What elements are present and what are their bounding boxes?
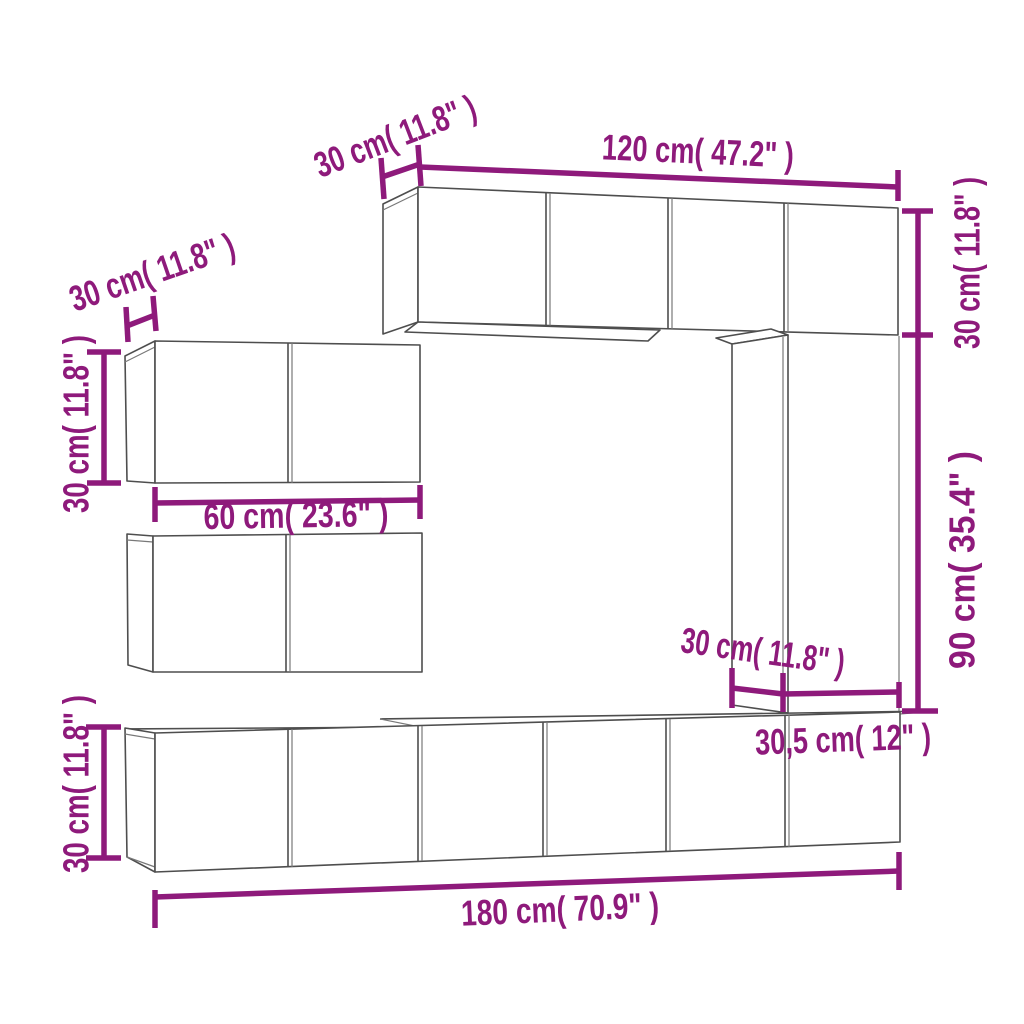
bottom-row-side-face — [125, 728, 155, 872]
dim-left-upper-depth — [126, 296, 156, 342]
dim-top-width-line — [420, 167, 898, 187]
dim-right-lower-height — [902, 335, 938, 711]
diagram-stage: 30 cm( 11.8" ) 120 cm( 47.2" ) 30 cm( 11… — [0, 0, 1024, 1024]
label-left-width: 60 cm( 23.6" ) — [203, 493, 389, 537]
left-lower-front-face — [153, 533, 422, 672]
top-cabinet-front-face — [418, 187, 898, 335]
dim-bottom-right-depth — [783, 682, 899, 708]
label-top-width: 120 cm( 47.2" ) — [601, 126, 795, 175]
dim-top-depth-line — [382, 164, 420, 177]
dim-left-upper-depth-line — [127, 315, 155, 326]
left-upper-cabinet — [125, 341, 420, 483]
label-right-upper-height: 30 cm( 11.8" ) — [947, 177, 988, 349]
left-upper-side-face — [125, 341, 155, 483]
label-bottom-width: 180 cm( 70.9" ) — [460, 884, 660, 934]
dim-bottom-right-depth-line — [783, 692, 899, 694]
label-left-upper-height: 30 cm( 11.8" ) — [56, 335, 97, 513]
label-bottom-left-height: 30 cm( 11.8" ) — [56, 695, 97, 873]
label-bottom-right-depth: 30,5 cm( 12" ) — [754, 715, 931, 762]
top-cabinet — [383, 187, 898, 341]
dimension-diagram: 30 cm( 11.8" ) 120 cm( 47.2" ) 30 cm( 11… — [0, 0, 1024, 1024]
label-right-lower-height: 90 cm( 35.4" ) — [942, 451, 983, 669]
dim-right-upper-height — [902, 211, 933, 335]
top-cabinet-side-face — [383, 187, 418, 334]
left-lower-cabinet — [127, 533, 422, 672]
left-lower-side-face — [127, 534, 153, 672]
